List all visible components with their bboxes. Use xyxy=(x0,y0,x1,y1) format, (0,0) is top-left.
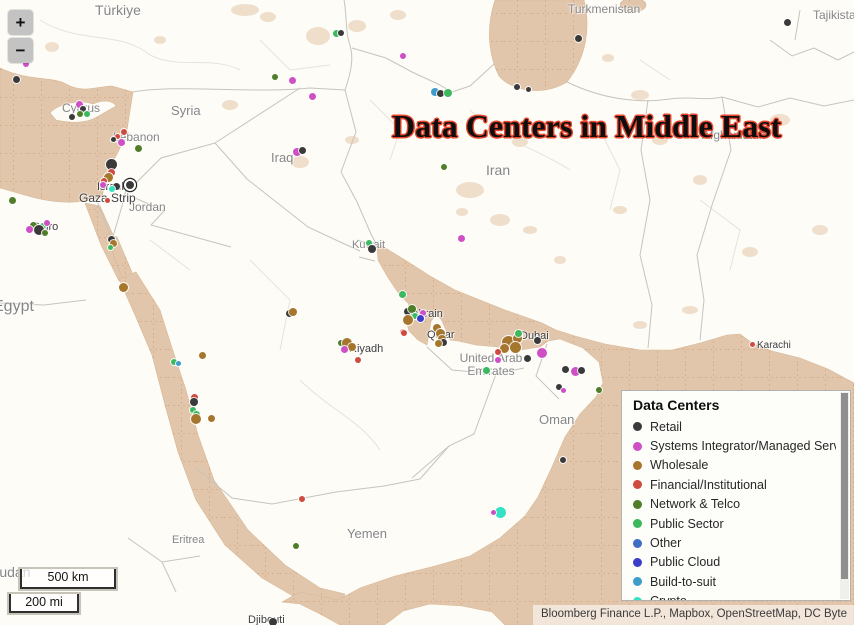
datacenter-dot-retail[interactable] xyxy=(269,618,277,625)
datacenter-dot-retail[interactable] xyxy=(514,84,520,90)
legend-items-list: RetailSystems Integrator/Managed Service… xyxy=(633,417,836,601)
datacenter-dot-si[interactable] xyxy=(400,53,406,59)
datacenter-dot-fin[interactable] xyxy=(401,330,407,336)
datacenter-dot-wholesale[interactable] xyxy=(510,342,521,353)
datacenter-dot-retail[interactable] xyxy=(368,245,376,253)
datacenter-dot-retail[interactable] xyxy=(69,114,75,120)
datacenter-dot-retail[interactable] xyxy=(437,90,444,97)
legend-item-wholesale: Wholesale xyxy=(633,456,836,475)
datacenter-dot-retail[interactable] xyxy=(575,35,582,42)
datacenter-dot-retail[interactable] xyxy=(560,457,566,463)
datacenter-dot-crypto[interactable] xyxy=(109,186,115,192)
datacenter-dot-retail[interactable] xyxy=(534,337,541,344)
datacenter-dot-si[interactable] xyxy=(100,182,106,188)
datacenter-dot-si[interactable] xyxy=(289,77,296,84)
scale-bar-mi: 200 mi xyxy=(9,594,79,613)
datacenter-dot-telco[interactable] xyxy=(596,387,602,393)
legend-label: Financial/Institutional xyxy=(650,478,767,492)
datacenter-dot-si[interactable] xyxy=(44,220,50,226)
legend-swatch-fin xyxy=(633,480,642,489)
legend-swatch-telco xyxy=(633,500,642,509)
datacenter-dot-crypto[interactable] xyxy=(495,507,506,518)
scale-bar-km: 500 km xyxy=(20,569,116,589)
datacenter-dot-wholesale[interactable] xyxy=(435,340,442,347)
datacenter-dot-retail[interactable] xyxy=(524,355,531,362)
datacenter-dot-retail[interactable] xyxy=(338,30,344,36)
legend-item-retail: Retail xyxy=(633,417,836,436)
datacenter-dot-wholesale[interactable] xyxy=(403,315,413,325)
datacenter-dot-public[interactable] xyxy=(84,111,90,117)
datacenter-dot-retail[interactable] xyxy=(124,179,136,191)
legend-label: Crypto xyxy=(650,594,687,601)
datacenter-dot-telco[interactable] xyxy=(441,164,447,170)
datacenter-dot-retail[interactable] xyxy=(111,137,116,142)
legend-label: Build-to-suit xyxy=(650,575,716,589)
datacenter-dot-retail[interactable] xyxy=(13,76,20,83)
legend-title: Data Centers xyxy=(633,397,836,413)
legend-label: Other xyxy=(650,536,681,550)
datacenter-dot-wholesale[interactable] xyxy=(348,343,356,351)
legend-swatch-retail xyxy=(633,422,642,431)
legend-swatch-wholesale xyxy=(633,461,642,470)
datacenter-dot-fin[interactable] xyxy=(299,496,305,502)
datacenter-dot-si[interactable] xyxy=(495,357,501,363)
legend-swatch-crypto xyxy=(633,597,642,601)
legend-swatch-other xyxy=(633,539,642,548)
datacenter-dot-retail[interactable] xyxy=(784,19,791,26)
legend-item-public-sector: Public Sector xyxy=(633,514,836,533)
legend-panel: Data Centers RetailSystems Integrator/Ma… xyxy=(621,390,851,601)
legend-item-crypto: Crypto xyxy=(633,592,836,601)
datacenter-dot-fin[interactable] xyxy=(750,342,755,347)
scale-bar-mi-label: 200 mi xyxy=(25,595,63,609)
datacenter-dot-retail[interactable] xyxy=(106,159,117,170)
legend-swatch-bts xyxy=(633,577,642,586)
datacenter-dot-wholesale[interactable] xyxy=(191,414,201,424)
datacenter-dot-fin[interactable] xyxy=(495,349,501,355)
datacenter-dot-si[interactable] xyxy=(26,226,33,233)
datacenter-dot-si[interactable] xyxy=(537,348,547,358)
datacenter-dot-wholesale[interactable] xyxy=(119,283,128,292)
legend-item-build-to-suit: Build-to-suit xyxy=(633,572,836,591)
datacenter-dot-fin[interactable] xyxy=(105,198,110,203)
datacenter-dot-wholesale[interactable] xyxy=(289,308,297,316)
legend-swatch-cloud xyxy=(633,558,642,567)
datacenter-dot-fin[interactable] xyxy=(355,357,361,363)
datacenter-dot-retail[interactable] xyxy=(299,147,306,154)
legend-item-public-cloud: Public Cloud xyxy=(633,553,836,572)
datacenter-dot-si[interactable] xyxy=(491,510,496,515)
legend-item-other: Other xyxy=(633,533,836,552)
zoom-controls: + − xyxy=(8,10,33,63)
legend-item-network-telco: Network & Telco xyxy=(633,495,836,514)
legend-label: Network & Telco xyxy=(650,497,740,511)
datacenter-dot-telco[interactable] xyxy=(77,111,83,117)
legend-label: Wholesale xyxy=(650,458,708,472)
datacenter-dot-public[interactable] xyxy=(515,330,522,337)
map-attribution: Bloomberg Finance L.P., Mapbox, OpenStre… xyxy=(533,605,854,625)
datacenter-dot-telco[interactable] xyxy=(135,145,142,152)
datacenter-dot-si[interactable] xyxy=(118,139,125,146)
datacenter-dot-telco[interactable] xyxy=(42,230,48,236)
legend-label: Public Sector xyxy=(650,517,724,531)
datacenter-dot-si[interactable] xyxy=(341,346,348,353)
datacenter-dot-retail[interactable] xyxy=(526,87,531,92)
legend-item-financial-institutional: Financial/Institutional xyxy=(633,475,836,494)
datacenter-dot-public[interactable] xyxy=(399,291,406,298)
datacenter-dot-public[interactable] xyxy=(483,367,490,374)
legend-scrollbar-thumb[interactable] xyxy=(841,393,848,579)
zoom-in-button[interactable]: + xyxy=(8,10,33,35)
map-title: Data Centers in Middle East xyxy=(392,108,781,145)
datacenter-dot-fin[interactable] xyxy=(121,129,127,135)
legend-swatch-public xyxy=(633,519,642,528)
legend-label: Public Cloud xyxy=(650,555,720,569)
legend-swatch-si xyxy=(633,442,642,451)
datacenter-dot-cloud[interactable] xyxy=(417,315,424,322)
datacenter-dot-wholesale[interactable] xyxy=(199,352,206,359)
datacenter-dot-retail[interactable] xyxy=(190,398,198,406)
zoom-out-button[interactable]: − xyxy=(8,38,33,63)
datacenter-dot-si[interactable] xyxy=(561,388,566,393)
datacenter-dot-public[interactable] xyxy=(108,245,113,250)
legend-item-systems-integrator-managed-services: Systems Integrator/Managed Services xyxy=(633,436,836,455)
datacenter-dot-telco[interactable] xyxy=(408,305,416,313)
datacenter-dot-retail[interactable] xyxy=(562,366,569,373)
map-canvas[interactable]: TürkiyeTurkmenistanTajikistanCyprusSyria… xyxy=(0,0,854,625)
datacenter-dot-si[interactable] xyxy=(309,93,316,100)
datacenter-dot-bts[interactable] xyxy=(176,361,181,366)
datacenter-dot-retail[interactable] xyxy=(578,367,585,374)
datacenter-dot-telco[interactable] xyxy=(293,543,299,549)
scale-bar-km-label: 500 km xyxy=(48,570,89,584)
legend-label: Systems Integrator/Managed Services xyxy=(650,439,836,453)
datacenter-dot-public[interactable] xyxy=(444,89,452,97)
datacenter-dot-wholesale[interactable] xyxy=(208,415,215,422)
datacenter-dot-si[interactable] xyxy=(458,235,465,242)
datacenter-dot-telco[interactable] xyxy=(9,197,16,204)
datacenter-dot-telco[interactable] xyxy=(272,74,278,80)
legend-label: Retail xyxy=(650,420,682,434)
legend-scrollbar[interactable] xyxy=(840,392,849,599)
